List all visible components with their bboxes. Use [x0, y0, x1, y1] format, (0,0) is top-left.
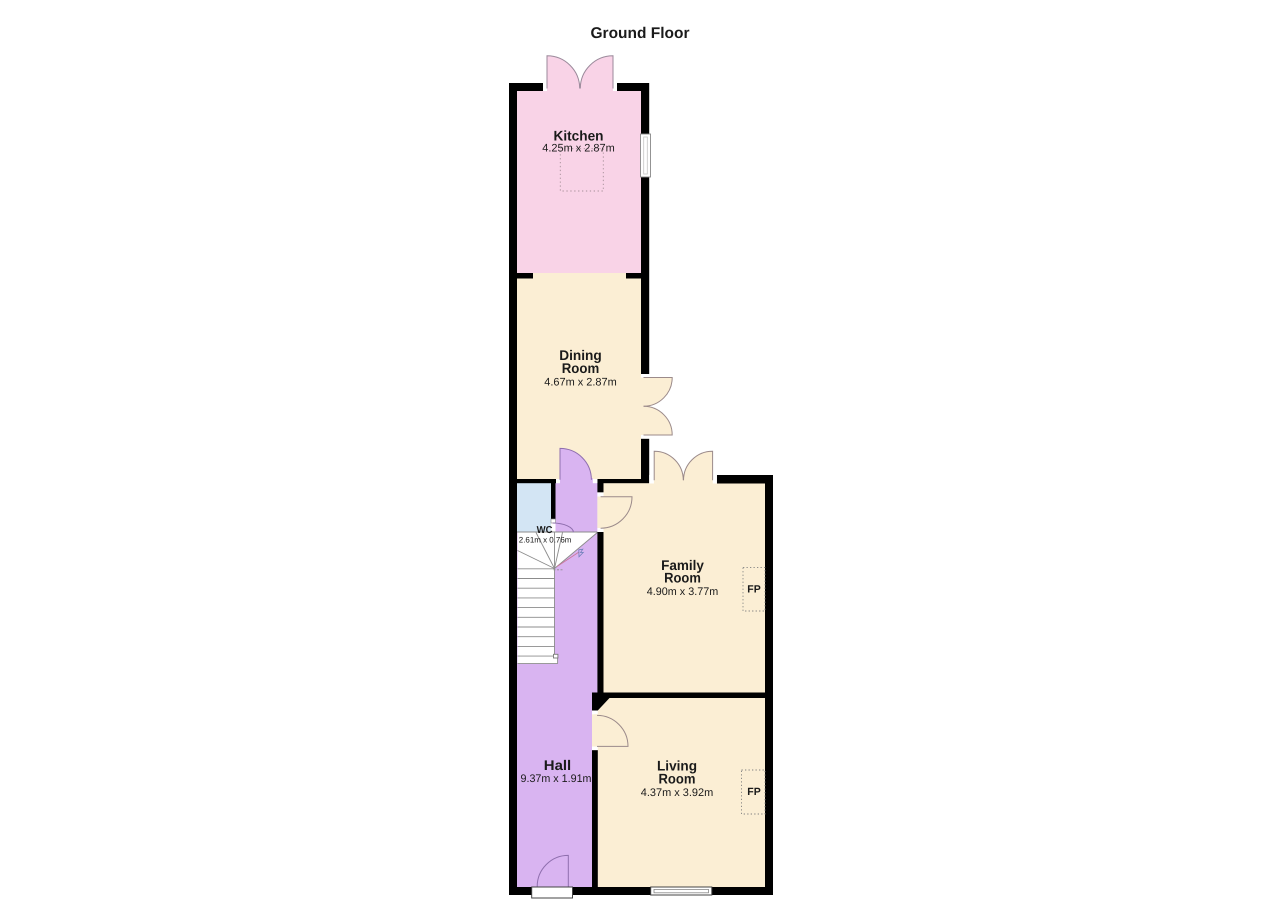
svg-text:FP: FP — [747, 584, 760, 596]
svg-text:Ground Floor: Ground Floor — [591, 25, 690, 42]
svg-text:WC: WC — [537, 525, 553, 536]
svg-text:Hall: Hall — [544, 757, 571, 773]
svg-text:Room: Room — [562, 360, 600, 376]
svg-text:4.25m x 2.87m: 4.25m x 2.87m — [542, 143, 615, 155]
svg-text:Kitchen: Kitchen — [554, 128, 604, 144]
svg-text:2.61m x 0.76m: 2.61m x 0.76m — [519, 536, 572, 545]
svg-text:4.37m x 3.92m: 4.37m x 3.92m — [641, 787, 714, 799]
svg-text:Room: Room — [659, 771, 696, 787]
svg-text:9.37m x 1.91m: 9.37m x 1.91m — [521, 773, 592, 785]
svg-text:4.67m x 2.87m: 4.67m x 2.87m — [544, 377, 617, 389]
svg-text:4.90m x 3.77m: 4.90m x 3.77m — [647, 586, 718, 598]
svg-text:Room: Room — [664, 570, 701, 586]
svg-text:FP: FP — [747, 786, 760, 798]
